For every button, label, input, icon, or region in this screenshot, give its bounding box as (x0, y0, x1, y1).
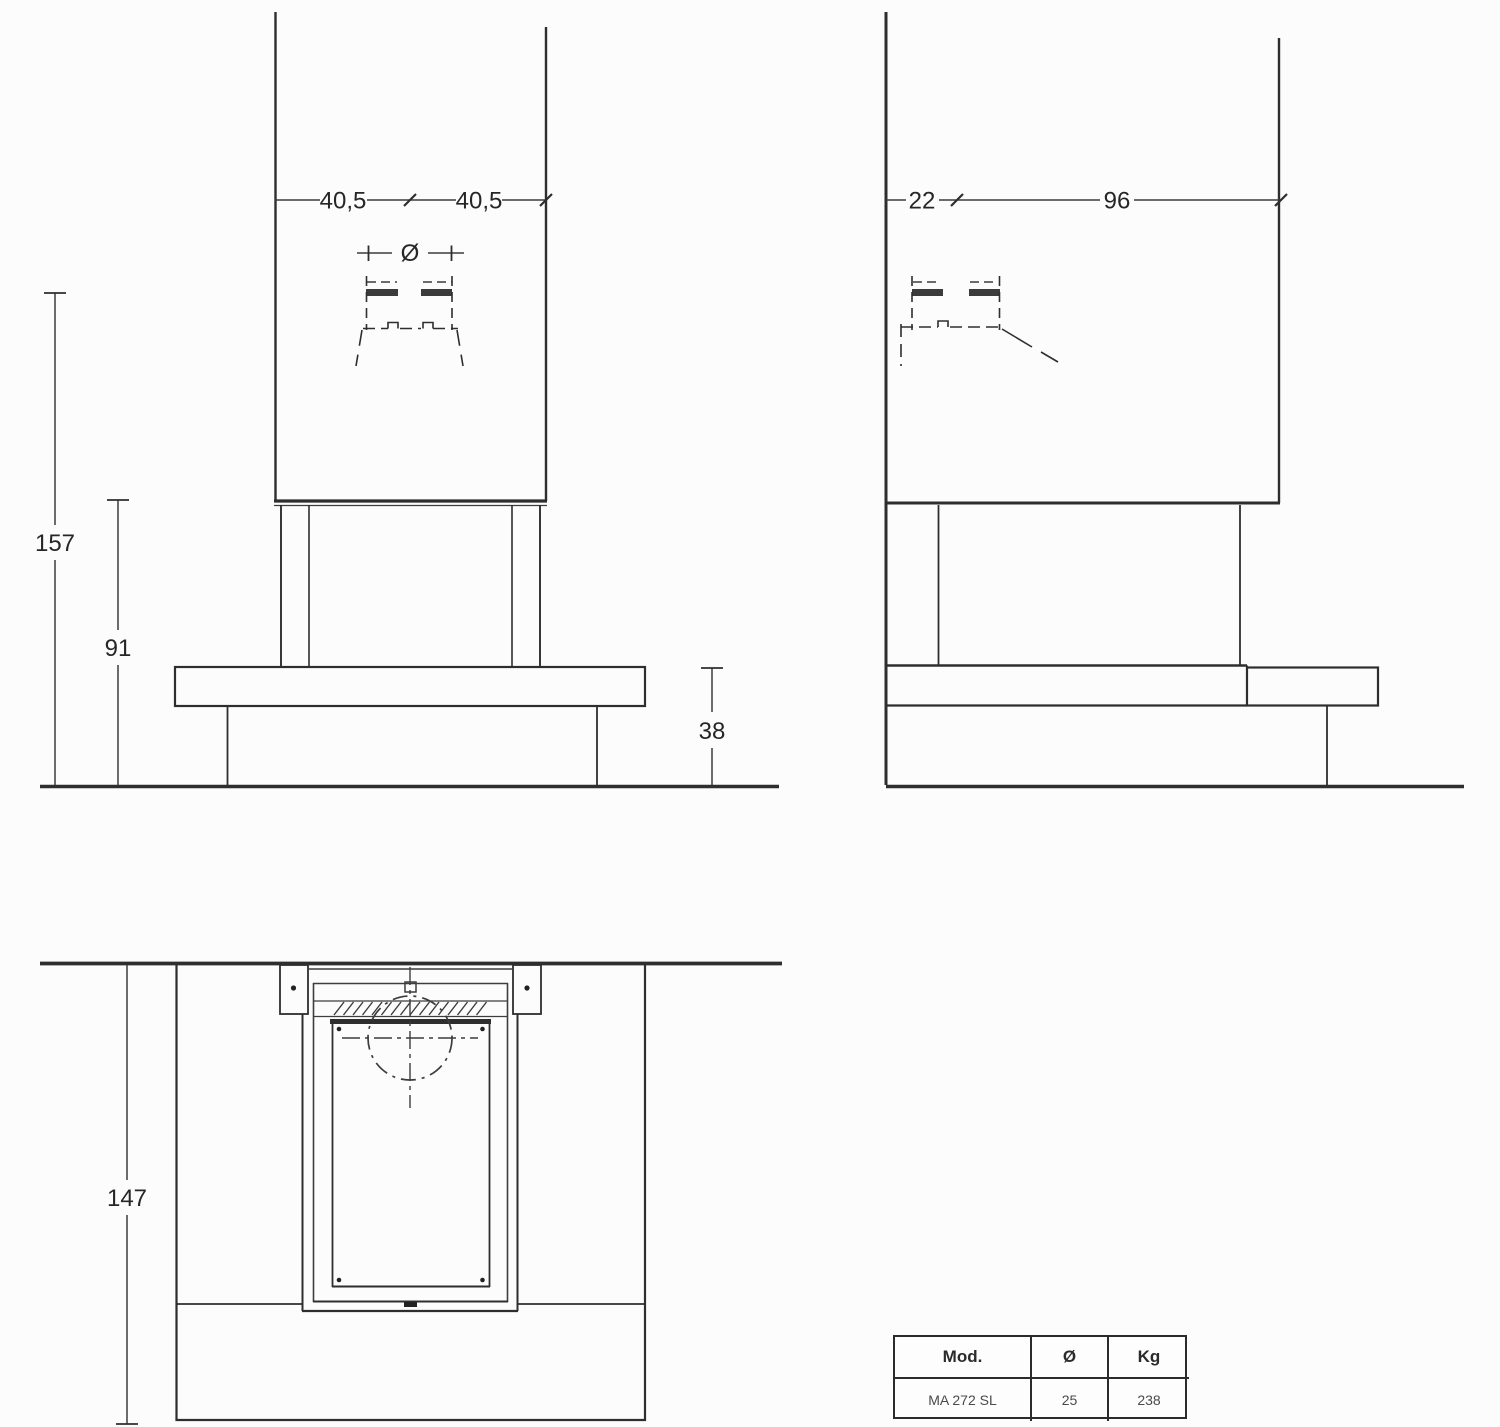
front-dim-width: 40,5 40,5 (275, 188, 552, 215)
front-dim-height-91: 91 (105, 500, 132, 785)
side-firebox-section (886, 505, 1247, 666)
plan-view: 147 (40, 964, 782, 1425)
spec-table-header-model: Mod. (895, 1337, 1032, 1379)
spec-table-row-model: MA 272 SL (895, 1379, 1032, 1421)
spec-table-header-weight: Kg (1109, 1337, 1189, 1379)
drawing-canvas: 40,5 40,5 Ø (0, 0, 1500, 1427)
plan-bench-outline (176, 965, 647, 1421)
front-dim-width-right-label: 40,5 (456, 188, 503, 215)
side-dim-depth: 22 96 (886, 188, 1287, 215)
front-dim-flue-diameter: Ø (357, 240, 464, 267)
plan-dim-width-147: 147 (107, 965, 147, 1424)
front-dim-width-left-label: 40,5 (320, 188, 367, 215)
front-flue-dashed-outline (356, 276, 463, 366)
spec-table-header-diameter: Ø (1032, 1337, 1109, 1379)
front-dim-height-38: 38 (699, 668, 726, 785)
plan-firebox-outer (302, 1014, 518, 1311)
front-dim-height-157: 157 (35, 293, 75, 785)
front-support-posts (281, 505, 540, 667)
front-hood-bottom-edge (274, 501, 547, 506)
front-dim-38-label: 38 (699, 718, 726, 745)
spec-table-row-diameter: 25 (1032, 1379, 1109, 1421)
front-dim-91-label: 91 (105, 635, 132, 662)
spec-table: Mod. Ø Kg MA 272 SL 25 238 (893, 1335, 1187, 1419)
side-bench-slab (886, 666, 1378, 707)
front-dim-157-label: 157 (35, 530, 75, 557)
side-dim-22-label: 22 (909, 188, 936, 215)
side-dim-96-label: 96 (1104, 188, 1131, 215)
spec-table-row-weight: 238 (1109, 1379, 1189, 1421)
front-bench-slab (175, 667, 645, 706)
technical-drawing-page: 40,5 40,5 Ø (0, 0, 1500, 1427)
plan-firebox-glass-frame (332, 1024, 490, 1307)
front-view: 40,5 40,5 Ø (35, 12, 779, 787)
side-view: 22 96 (885, 12, 1465, 787)
front-flue-diameter-label: Ø (401, 240, 420, 267)
plan-dim-147-label: 147 (107, 1185, 147, 1212)
plan-flue-centerlines (342, 967, 478, 1108)
plan-firebox-inner (313, 982, 508, 1302)
side-flue-dashed-outline (901, 276, 1058, 366)
front-base-block (228, 706, 598, 785)
